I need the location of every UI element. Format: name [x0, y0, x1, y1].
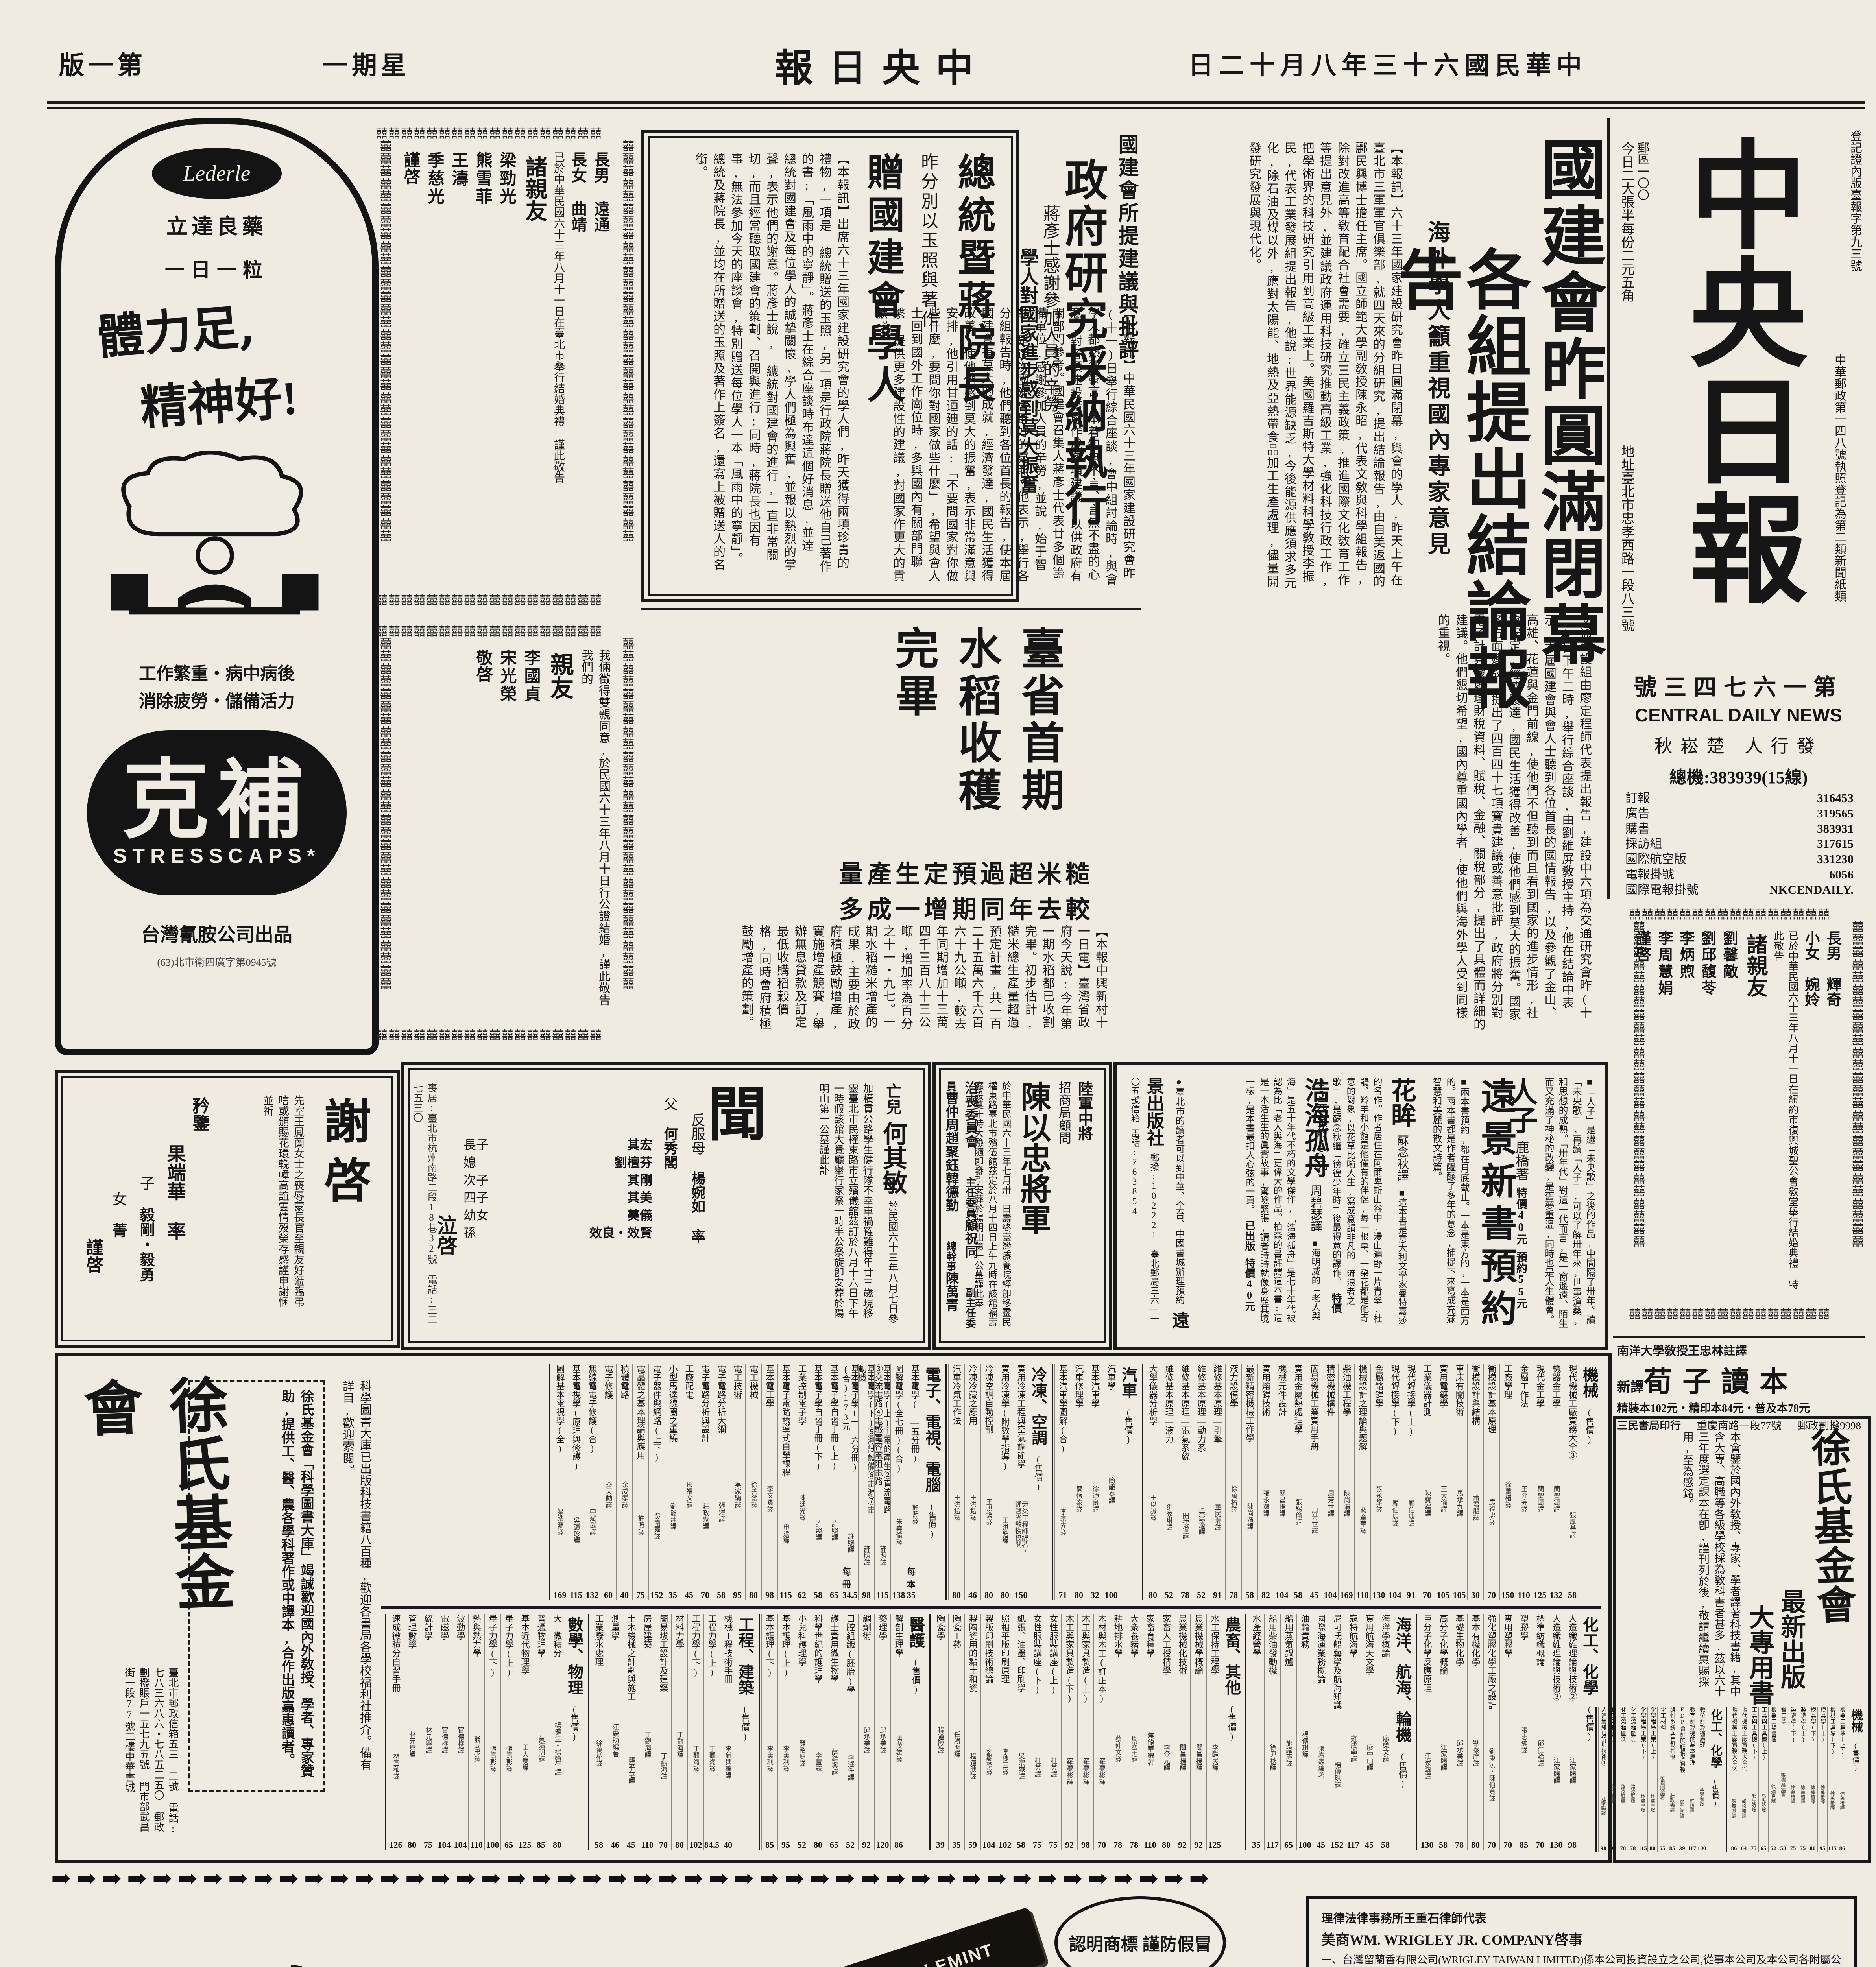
- catalog-section-header: 機械 (售價): [1847, 1707, 1864, 1852]
- book-translator: 江家臨譯: [1440, 1744, 1447, 1771]
- book-entry: 基礎生物化學 邱承美譯 78: [1451, 1614, 1467, 1850]
- chair-name: 顧祝同: [963, 1218, 977, 1258]
- book-translator: 蔡仲文譯: [1115, 1735, 1121, 1762]
- book-price: 80: [814, 1840, 822, 1850]
- book-price: 35: [668, 1590, 677, 1600]
- ho-mother: 楊婉如 率: [689, 1171, 705, 1243]
- section-sale-note: (售價): [1123, 1407, 1133, 1444]
- book-entry: 液力設備學 徐萬樁譯 78: [1225, 1364, 1241, 1600]
- book-price: 105: [1437, 1590, 1450, 1600]
- hi-border-top: 囍囍囍囍囍囍囍囍囍囍囍囍囍囍囍囍: [1629, 905, 1865, 922]
- book-entry: 製造學(上) 徐萬樁譯 75: [1798, 1707, 1808, 1852]
- book-title: 陶瓷工藝: [952, 1614, 961, 1649]
- book-entry: 普通物理學 黃浩明譯 85: [533, 1614, 549, 1850]
- book-translator: 吳家駒譯: [734, 1481, 741, 1508]
- section-title: 數學、物理: [565, 1614, 584, 1698]
- book-price: 70: [1487, 1840, 1496, 1850]
- book-price: 80: [1075, 1590, 1083, 1600]
- phone-label: 電報掛號: [1625, 867, 1674, 882]
- catalog-bottom-row: 化工、化學 (售價) 人造纖維理論與技術② 江家臨譯 98 人造纖維理論與技術③: [385, 1614, 1601, 1850]
- chen-rank: 陸軍中將: [1073, 1081, 1095, 1329]
- book-title: 實用電鍍學: [1438, 1364, 1448, 1408]
- chair-label: 主任委員: [964, 1177, 976, 1218]
- book-title: 管理數學: [407, 1614, 416, 1649]
- section-books: 人造纖維理論與技術② 江家臨譯 98 人造纖維理論與技術③ 江家臨譯 130 標…: [1419, 1614, 1580, 1850]
- book-translator: 吳鑽珍譯: [573, 1517, 580, 1544]
- book-price: 59: [968, 1840, 977, 1850]
- book-translator: 杜芸譯: [1050, 1757, 1057, 1777]
- policy-story-body: 【本報訊】中華民國六十三年國家建設研究會昨(十一)日舉行綜合座談,會中組討論時,…: [1023, 307, 1137, 590]
- book-translator: 江畿助編著: [612, 1723, 619, 1757]
- catalog-section-header: 冷凍、空調 (售價): [1029, 1364, 1049, 1600]
- book-translator: 徐萬樁譯: [1505, 1481, 1511, 1508]
- section-sale-note: (售價): [1584, 1407, 1594, 1444]
- book-entry: 實用冷凍學(附數學指導) 王洪鎧譯 80: [997, 1364, 1013, 1600]
- book-title: 實用航海天文學: [1365, 1614, 1374, 1675]
- arrow-border-top: ➡➡➡➡➡➡➡➡➡➡➡➡➡➡➡➡➡➡➡➡➡➡➡➡➡➡➡➡➡➡➡➡➡➡➡➡➡➡➡➡…: [51, 1865, 1865, 1892]
- relation-label: 媳: [463, 1154, 476, 1172]
- book-price: 80: [408, 1840, 416, 1850]
- thanks-sons: 子 毅剛・毅勇: [135, 1175, 157, 1282]
- book-entry: 實用塑膠學 70: [1499, 1614, 1516, 1850]
- vista-renzi: ■「人子」是繼「未央歌」之後的作品,中間隔了卅年。讀「未央歌」,再讀「人子」,可…: [1530, 1077, 1597, 1329]
- ho-mother-label: 反服母: [689, 1113, 705, 1155]
- thanks-mourner: 果端華 率: [161, 1144, 188, 1240]
- book-entry: 最新精密機械工作學 陳尚渭譯 58: [1241, 1364, 1257, 1600]
- relation-name: 劉檀芬: [615, 1154, 652, 1172]
- book-price: 169: [1340, 1590, 1353, 1600]
- book-price: 58: [1780, 1845, 1786, 1852]
- book-translator: 劉能建譯: [670, 1503, 676, 1530]
- book-title: 水產經營學: [1252, 1614, 1261, 1657]
- book-translator: 江家臨譯: [1569, 1757, 1576, 1784]
- book-entry: 化工流程圖② 路汝璧譯 78: [1618, 1707, 1628, 1852]
- masthead-phone-row: 採訪組317615: [1625, 836, 1854, 852]
- book-entry: 水產經營學 35: [1248, 1614, 1264, 1850]
- xunzi-prefix: 新譯: [1617, 1376, 1644, 1395]
- book-title: 基本電學(下)⑤測試設備⑥電源⑦電動機: [858, 1364, 874, 1520]
- book-price: 39: [936, 1840, 945, 1850]
- book-price: 58: [717, 1590, 726, 1600]
- book-entry: 油輪實務 楊傳琪譯 100: [1296, 1614, 1313, 1850]
- book-price: 78: [1630, 1845, 1636, 1852]
- chen-head: 陸軍中將 招商局顧問 陳以忠將軍: [1011, 1081, 1095, 1329]
- book-title: 工程力學(下): [691, 1614, 700, 1677]
- wedding-c-signer: 劉邱馥苓: [1697, 930, 1718, 1296]
- book-entry: 電子修護 齊天勳譯 60: [600, 1364, 616, 1600]
- wedding-a-content: 長男 遠通 長女 曲靖 已於中華民國六十三年八月十一日在臺北市舉行結婚典禮 謹此…: [407, 151, 612, 576]
- book-translator: 莊政義譯: [1670, 1793, 1675, 1812]
- book-price: 102: [689, 1840, 702, 1850]
- book-translator: 簡聖鑄譯: [1553, 1485, 1560, 1512]
- vista-pub-note: ●臺北市的讀者可以到中華、全台、中國書城辦理預約: [1174, 1077, 1184, 1305]
- book-entry: 機器金工學 簡聖鑄譯 132: [1548, 1364, 1564, 1600]
- book-translator: 徐迺良譯: [1771, 1784, 1776, 1803]
- book-entry: 基本汽車學圖解(合) 李宗先譯 71: [1054, 1364, 1071, 1600]
- book-entry: 電子電路分析與設計 莊政幾譯 70: [697, 1364, 713, 1600]
- book-translator: 許照譯: [863, 1545, 870, 1565]
- wrigley-brand-row: 美國 箭牌 口香糖: [93, 1904, 789, 1967]
- date-label: 中華民國六十三年八月十二日: [1188, 45, 1587, 81]
- book-translator: 杜芸譯: [1034, 1757, 1041, 1777]
- book-price: 45: [1365, 1840, 1374, 1850]
- book-title: 解剖生理學: [894, 1614, 903, 1657]
- book-entry: 數字計算機的基本原理 許照譯 117: [1687, 1707, 1697, 1852]
- book-price: 98: [1601, 1845, 1606, 1852]
- book-translator: 熊先勢譯: [1751, 1794, 1756, 1812]
- book-price: 85: [765, 1840, 774, 1850]
- book-price: 32: [1091, 1590, 1099, 1600]
- hsu-catalog: 徐氏基金會 臺北市郵政信箱五三—二號 電話:七八三六八六・七八五二五〇 郵政劃撥…: [55, 1353, 1612, 1863]
- phone-label: 購書: [1625, 821, 1650, 837]
- book-translator: 羅夢彬譯: [1082, 1758, 1089, 1785]
- book-translator: 郭宗熙譯: [1680, 1800, 1684, 1819]
- book-title: 鑄工學: [1780, 1707, 1786, 1724]
- book-price: 58: [1381, 1840, 1390, 1850]
- masthead-phone-row: 國際航空版331230: [1625, 852, 1854, 867]
- catalog-section-header: 數學、物理 (售價): [565, 1614, 585, 1850]
- section-sale-note: (售價): [1711, 1777, 1719, 1807]
- book-translator: 林元興譯: [425, 1727, 432, 1753]
- masthead-phone-list: 訂報316453 廣告319565 購書383931 採訪組317615 國際航…: [1625, 791, 1854, 897]
- book-title: 電子電路分析大綱: [716, 1364, 726, 1434]
- book-translator: 徐萬樁譯: [1800, 1785, 1805, 1804]
- committee-title: 治喪委員會: [963, 1081, 977, 1148]
- book-title: 藥理學: [878, 1614, 887, 1640]
- book-title: 基本電子電路誘導式自學課程: [781, 1364, 790, 1477]
- section-title: 電子、電視、電腦: [922, 1364, 942, 1495]
- book-title: 基本汽車學圖解(合): [1058, 1364, 1067, 1453]
- hi-border-right: 囍囍囍囍囍囍囍囍囍囍囍囍囍囍囍囍囍囍囍囍囍囍囍囍囍囍囍囍囍囍囍囍: [618, 140, 635, 592]
- book-translator: 張永耀譯: [1263, 1490, 1269, 1517]
- book-title: 電晶體之基本理論與應用: [636, 1364, 645, 1460]
- book-entry: 高分子化學概論 江家臨譯 58: [1435, 1614, 1451, 1850]
- book-entry: 化工流程圖③ 路汝璧譯 91: [1608, 1707, 1618, 1852]
- book-title: 實用熔銲技術: [1261, 1364, 1270, 1416]
- book-entry: 冷凍空調自動控制 王洪鎧譯 80: [980, 1364, 997, 1600]
- book-entry: 量子力學(下) 張壽彭譯 100: [484, 1614, 500, 1850]
- book-title: 無線電電子修護(合): [587, 1364, 596, 1453]
- book-title: 電子電路分析與設計: [700, 1364, 709, 1442]
- book-entry: 家畜人工授精學 李登元譯 80: [1158, 1614, 1174, 1850]
- book-translator: 王大倫譯: [1440, 1485, 1447, 1512]
- book-price: 65: [830, 1590, 838, 1600]
- book-price: 45: [1310, 1590, 1318, 1600]
- relation-name: 美儀: [627, 1207, 652, 1224]
- book-price: 52: [1197, 1590, 1206, 1600]
- book-entry: 製造學(下) 徐萬樁譯 75: [1788, 1707, 1798, 1852]
- book-price: 100: [1298, 1840, 1311, 1850]
- book-translator: 關昌揚譯: [1279, 1490, 1285, 1517]
- hsu-new-books: 徐氏基金會 最新出版 大專用書 本會鑒於國內外敎授、專家、學者譯著科技書籍,其中…: [1613, 1416, 1871, 1863]
- book-translator: 王洪鎧譯: [953, 1494, 960, 1521]
- book-title: 基本護理(下): [765, 1614, 774, 1677]
- book-translator: 周芳世譯: [1311, 1507, 1318, 1534]
- book-translator: 薛銓與譯: [831, 1748, 838, 1775]
- book-translator: 李新興編譯: [725, 1745, 731, 1779]
- book-price: 85: [1669, 1845, 1675, 1852]
- book-translator: 許照譯: [879, 1545, 886, 1565]
- book-price: 52: [798, 1840, 806, 1850]
- lederle-benefit-2: 消除疲勞・儲備活力: [139, 687, 295, 712]
- book-title: 巨分子化學反應原理: [1422, 1614, 1431, 1692]
- lead-story-body: 【本報訊】六十三年國家建設研究會昨日圓滿閉幕,與會的學人,昨天上午在臺北市三軍軍…: [1145, 142, 1405, 590]
- book-title: 基本電子學(一—六分冊)(合)173元: [842, 1364, 858, 1520]
- catalog-section: 機械 (售價) 機器工具學(上) 徐萬樁譯 86 機械工具學(下): [1726, 1707, 1864, 1852]
- book-entry: 工廠配電 邢福文譯 45: [681, 1364, 697, 1600]
- book-title: 農業機械學概論: [1194, 1614, 1203, 1675]
- book-entry: 強化塑膠化學工廠之設計 劉秉沅・陳伯寬譯 70: [1483, 1614, 1499, 1850]
- book-title: 電子器件與網路(上下): [652, 1364, 661, 1462]
- wedding-c-signer: 李炳煦: [1675, 930, 1697, 1296]
- catalog-section: 冷凍、空調 (售價) 實用冷凍工程與空氣調節學 尹炎工程師編著・鍾啓光敎授校閱 …: [945, 1364, 1049, 1600]
- book-translator: 關昌揚譯: [1179, 1744, 1186, 1771]
- book-translator: 丁觀海譯: [660, 1753, 667, 1779]
- thanks-notice-box: 謝啓 先室王鳳蘭女士之喪辱蒙長官至親友好蒞臨弔唁或頒賜花環輓幛高誼雲情歿榮存感謹…: [55, 1070, 400, 1348]
- book-entry: 陶瓷工藝 任勝閣譯 35: [948, 1614, 964, 1850]
- book-entry: 測量學 江畿助編著 46: [607, 1614, 623, 1850]
- ho-name: 何其敏: [879, 1121, 906, 1194]
- book-price: 75: [1033, 1840, 1041, 1850]
- book-title: 機械工具學(下): [1829, 1707, 1835, 1755]
- book-title: 實用冷凍工程與空氣調節學: [1016, 1364, 1025, 1468]
- book-entry: 基本電子學自習手冊(下) 許照譯 58: [810, 1364, 826, 1600]
- book-translator: 丁觀海譯: [644, 1731, 651, 1758]
- book-entry: 紙張、油墨、印刷學 吳宗嶽譯 58: [1013, 1614, 1029, 1850]
- book-title: 基本護理(上): [781, 1614, 790, 1677]
- book-title: 圖解電學(全七冊)(合): [894, 1364, 903, 1473]
- book-translator: 林宜秞譯: [393, 1753, 399, 1779]
- book-title: 實用冷凍學(附數學指導): [1000, 1364, 1009, 1471]
- book-entry: 現代機械工廠實務大全② 張厚基譯 86: [1729, 1707, 1739, 1852]
- book-translator: 張煜譯: [718, 1502, 725, 1522]
- book-title: 電磁學: [439, 1614, 449, 1640]
- book-price: 80: [749, 1590, 758, 1600]
- gum-pack-doublemint: DOUBLEMINT: [819, 1907, 1047, 1967]
- book-title: 衝模設計基本原理: [1487, 1364, 1496, 1434]
- haohai-price: 特價40元: [1244, 1258, 1255, 1311]
- book-title: 工程力學(上): [707, 1614, 716, 1677]
- book-price: 40: [724, 1840, 732, 1850]
- section-title: 化工、化學: [1580, 1614, 1599, 1698]
- book-entry: 基本護理(上) 李美利譯 95: [777, 1614, 794, 1850]
- book-entry: 調劑術 邱承美譯 92: [858, 1614, 874, 1850]
- book-title: 人造纖維理論與技術③: [1551, 1614, 1560, 1701]
- book-translator: 簡恆泰譯: [1076, 1485, 1082, 1512]
- book-translator: 徐萬樁譯: [1810, 1785, 1815, 1804]
- ho-family-row: 長子其宏: [463, 1136, 652, 1154]
- book-price: 65: [1284, 1840, 1293, 1850]
- book-price: 75: [1800, 1845, 1806, 1852]
- book-title: 家畜人工授精學: [1161, 1614, 1171, 1675]
- book-price: 115: [876, 1590, 889, 1600]
- top-strip: 第一版 星期一 中央日報 中華民國六十三年八月十二日: [47, 37, 1865, 96]
- book-entry: 化工流程圖① 路汝璧譯 78: [1628, 1707, 1638, 1852]
- book-translator: 林建中譯: [1640, 1794, 1645, 1812]
- catalog-section: 機械 (售價) 現代機械工廠實務大全③ 張厚基譯 58 機器金工學: [1142, 1364, 1601, 1600]
- book-title: 製造學(上): [1800, 1707, 1806, 1743]
- ho-family-row: 次子其剛: [463, 1172, 652, 1189]
- catalog-top-row: 機械 (售價) 現代機械工廠實務大全③ 張厚基譯 58 機器金工學: [385, 1364, 1601, 1600]
- wedding-c-signer: 李周慧娟: [1653, 930, 1675, 1296]
- book-title: 標準紡織概論: [1535, 1614, 1544, 1666]
- book-translator: 徐萬樁譯: [1230, 1485, 1237, 1512]
- book-entry: 鑄工學 張錫綸編著 58: [1778, 1707, 1788, 1852]
- book-title: 材料力學: [675, 1614, 684, 1649]
- book-entry: 製版印刷技術總論 劉顯整譯 104: [980, 1614, 997, 1850]
- book-entry: 維修基本原理—液力 鄧家琳譯 52: [1161, 1364, 1177, 1600]
- book-translator: 李美利譯: [766, 1745, 773, 1772]
- book-entry: 科學世紀的護理學 李豐譯 80: [810, 1614, 826, 1850]
- wedding-a-signer: 熊雪菲: [471, 151, 495, 576]
- book-translator: 羅夢彬譯: [1066, 1758, 1073, 1785]
- book-title: 車床有關技術: [1455, 1364, 1464, 1416]
- catalog-section: 化工、化學 (售價) 人造纖維理論與技術② 江家臨譯 98 人造纖維理論與技術③: [1416, 1614, 1601, 1850]
- chen-role: 招商局顧問: [1055, 1081, 1073, 1329]
- book-entry: 工具與工具機(下) 熊先勢譯 75: [1749, 1707, 1758, 1852]
- book-translator: 梁浩源譯: [557, 1508, 563, 1535]
- book-entry: 工業廢水處理 徐萬樁譯 58: [591, 1614, 607, 1850]
- book-entry: 基本電工學 李文賓譯 98: [761, 1364, 777, 1600]
- book-entry: 積體電路 余成孝譯 40: [616, 1364, 632, 1600]
- book-translator: 陳尚渭譯: [1246, 1503, 1253, 1530]
- book-translator: 程道腴譯: [937, 1727, 944, 1753]
- book-title: 簡易機械工業實用手册: [1309, 1364, 1318, 1451]
- book-price: 45: [627, 1840, 635, 1850]
- book-title: 寇特航海學: [1348, 1614, 1357, 1657]
- haohai-title: 浩海孤舟: [1301, 1077, 1329, 1178]
- section-books: 汽車學 簡能泰譯 100 基本汽車學 徐迺良譯 32 汽車修理學: [1054, 1364, 1119, 1600]
- thanks-body: 先室王鳳蘭女士之喪辱蒙長官至親友好蒞臨弔唁或頒賜花環輓幛高誼雲情歿榮存感謹申謝悃…: [220, 1095, 306, 1315]
- hi-border-left: 囍囍囍囍囍囍囍囍囍囍囍囍囍囍囍囍囍囍囍囍囍囍囍囍囍囍囍囍: [376, 637, 393, 1027]
- book-title: 圖解基本電視學(全): [555, 1364, 564, 1453]
- book-title: 女性服裝講座(上): [1049, 1614, 1058, 1694]
- catalog-section: 海洋、航海、輪機 (售價) 海洋學概論 廖榮文譯 58 實用航海天文學: [1245, 1614, 1414, 1850]
- book-entry: 耕地排水學 蔡仲文譯 78: [1110, 1614, 1126, 1850]
- catalog-section-header: 機械 (售價): [1580, 1364, 1601, 1600]
- book-price: 85: [1520, 1840, 1528, 1850]
- wrigley-legal-box: 理律法律事務所王重石律師代表 美商WM. WRIGLEY JR. COMPANY…: [1306, 1896, 1857, 1967]
- book-price: 70: [1536, 1840, 1544, 1850]
- book-price: 65: [830, 1840, 838, 1850]
- book-title: 大學儀器分析學: [1148, 1364, 1157, 1425]
- catalog-section-header: 海洋、航海、輪機 (售價): [1393, 1614, 1414, 1850]
- thanks-daughter: 女 菁: [107, 1191, 129, 1238]
- book-title: 現代金工學: [1535, 1364, 1544, 1408]
- wedding-a-groom: 長男 遠通: [589, 151, 612, 576]
- book-translator: 任勝閣譯: [953, 1731, 960, 1758]
- book-price: 105: [1453, 1590, 1466, 1600]
- book-price: 130: [1372, 1590, 1385, 1600]
- section-title: 汽車: [1119, 1364, 1138, 1401]
- book-translator: 徐善發譯: [750, 1481, 757, 1508]
- wrigley-brand-cn: 箭牌: [140, 1936, 336, 1967]
- book-title: 塑膠學: [1519, 1614, 1528, 1640]
- book-translator: 陳寶端譯: [1424, 1490, 1431, 1517]
- book-translator: 楊傳琪譯: [1302, 1731, 1308, 1758]
- book-entry: 基本電學(上)①電的產生②直流電路③交流電路④電感電容電阻電路 許照譯 115: [874, 1364, 890, 1600]
- book-price: 110: [470, 1840, 483, 1850]
- book-price: 80: [1001, 1590, 1009, 1600]
- book-title: 強化塑膠化學工廠之設計: [1487, 1614, 1496, 1709]
- book-price: 125: [1208, 1840, 1221, 1850]
- book-price: 58: [1439, 1840, 1448, 1850]
- book-price: 104: [1276, 1590, 1289, 1600]
- book-entry: 速成微積分自習手冊 林宜秞譯 126: [388, 1614, 404, 1850]
- hsu-new-tagline-2: 大專用書: [1741, 1604, 1778, 1705]
- book-price: 132: [1550, 1590, 1563, 1600]
- book-title: 化學程序工業(上): [1649, 1707, 1656, 1760]
- book-entry: 小兒科護理學 顏裕庭譯 52: [794, 1614, 810, 1850]
- book-translator: 張錫綸編著: [1781, 1773, 1786, 1797]
- book-entry: 實用電鍍學 王大倫譯 105: [1435, 1364, 1451, 1600]
- book-title: 高分子化學概論: [1438, 1614, 1448, 1675]
- lederle-ad: Lederle 立達良藥 一日一粒 體力足, 精神好! 工作繁重・病中病後 消除…: [55, 118, 379, 1055]
- book-entry: 模具學(下) 徐萬樁譯 80: [1808, 1707, 1817, 1852]
- book-price: 80: [553, 1840, 561, 1850]
- book-title: 木工與家具製造(下): [1065, 1614, 1074, 1703]
- lederle-slogan-1: 體力足,: [94, 288, 257, 367]
- book-translator: 許照譯: [912, 1504, 918, 1524]
- wedding-b-body: 我倆徵得雙親同意,於民國六十三年八月十日行公證結婚,謹此敬告我們的: [577, 649, 612, 1015]
- book-title: 速成微積分自習手冊: [391, 1614, 400, 1692]
- wedding-notice-b: 囍囍囍囍囍囍囍囍囍囍囍囍囍囍囍囍囍囍 囍囍囍囍囍囍囍囍囍囍囍囍囍囍囍囍囍囍 囍囍…: [376, 622, 635, 1043]
- book-translator: 李宗先譯: [1060, 1508, 1066, 1535]
- vista-huamou: 花眸 蘇念秋譯 ■這本書是意大利文學家曼特嘉莎的名作。作者居住在阿爾卑斯山谷中,…: [1345, 1077, 1420, 1329]
- book-entry: 無線電電子修護(合) 申斌武譯 132: [584, 1364, 600, 1600]
- wrigley-brand-block: 美國 箭牌 口香糖 WRIGLEY'S CHEWING GUM: [93, 1904, 792, 1967]
- rice-subhead-2: 較去年同期增一成多: [839, 889, 1094, 925]
- wedding-c-signer: 劉馨敵: [1718, 930, 1740, 1296]
- book-price: 75: [1790, 1845, 1796, 1852]
- book-price: 62: [798, 1590, 806, 1600]
- book-price: 58: [1294, 1590, 1302, 1600]
- book-price: 70: [1423, 1590, 1431, 1600]
- book-price: 117: [1347, 1840, 1359, 1850]
- book-translator: 周芳世譯: [1327, 1490, 1334, 1517]
- section-books: 解剖生理學 洪茂雄譯 86 藥理學 邱承美譯 120 調劑術: [761, 1614, 907, 1850]
- book-price: 80: [952, 1590, 961, 1600]
- book-price: 75: [424, 1840, 432, 1850]
- trademark-bubble: 認明商標 謹防假冒: [1054, 1896, 1226, 1967]
- book-title: 陶瓷學: [936, 1614, 945, 1640]
- book-title: 冷凍空調自動控制: [984, 1364, 993, 1434]
- book-price: 52: [1771, 1845, 1776, 1852]
- book-title: 木工與家具製造(上): [1081, 1614, 1090, 1703]
- book-translator: 丁觀海譯: [709, 1745, 715, 1772]
- book-entry: 木材與木工(訂正本) 羅夢彬譯 70: [1093, 1614, 1110, 1850]
- book-price: 70: [659, 1840, 668, 1850]
- book-translator: 洪茂雄譯: [896, 1735, 902, 1762]
- vice-name: 曹仲周: [944, 1091, 958, 1131]
- book-entry: 基本電子學(一—六分冊)(合)173元 許照譯 每冊34.5: [842, 1364, 858, 1600]
- book-price: 58: [1017, 1840, 1025, 1850]
- book-entry: 大衆養豬學 周光宇譯 78: [1126, 1614, 1142, 1850]
- book-price: 91: [1610, 1845, 1616, 1852]
- book-price: 80: [1810, 1845, 1816, 1852]
- book-title: 大衆養豬學: [1129, 1614, 1138, 1657]
- book-price: 130: [1550, 1840, 1563, 1850]
- book-translator: 張壽彭譯: [489, 1745, 496, 1772]
- book-translator: 徐萬樁譯: [1830, 1791, 1835, 1810]
- book-entry: 精密機械構件 周芳世譯 104: [1322, 1364, 1338, 1600]
- book-translator: 張志純譯: [1521, 1727, 1527, 1753]
- book-title: 機器金工學: [1551, 1364, 1560, 1408]
- book-title: 機械元件設計: [1277, 1364, 1286, 1416]
- book-translator: 李學養譯: [1699, 1787, 1704, 1806]
- book-translator: 房福忠譯: [1488, 1498, 1495, 1525]
- book-title: 農業機械化技術: [1178, 1614, 1187, 1675]
